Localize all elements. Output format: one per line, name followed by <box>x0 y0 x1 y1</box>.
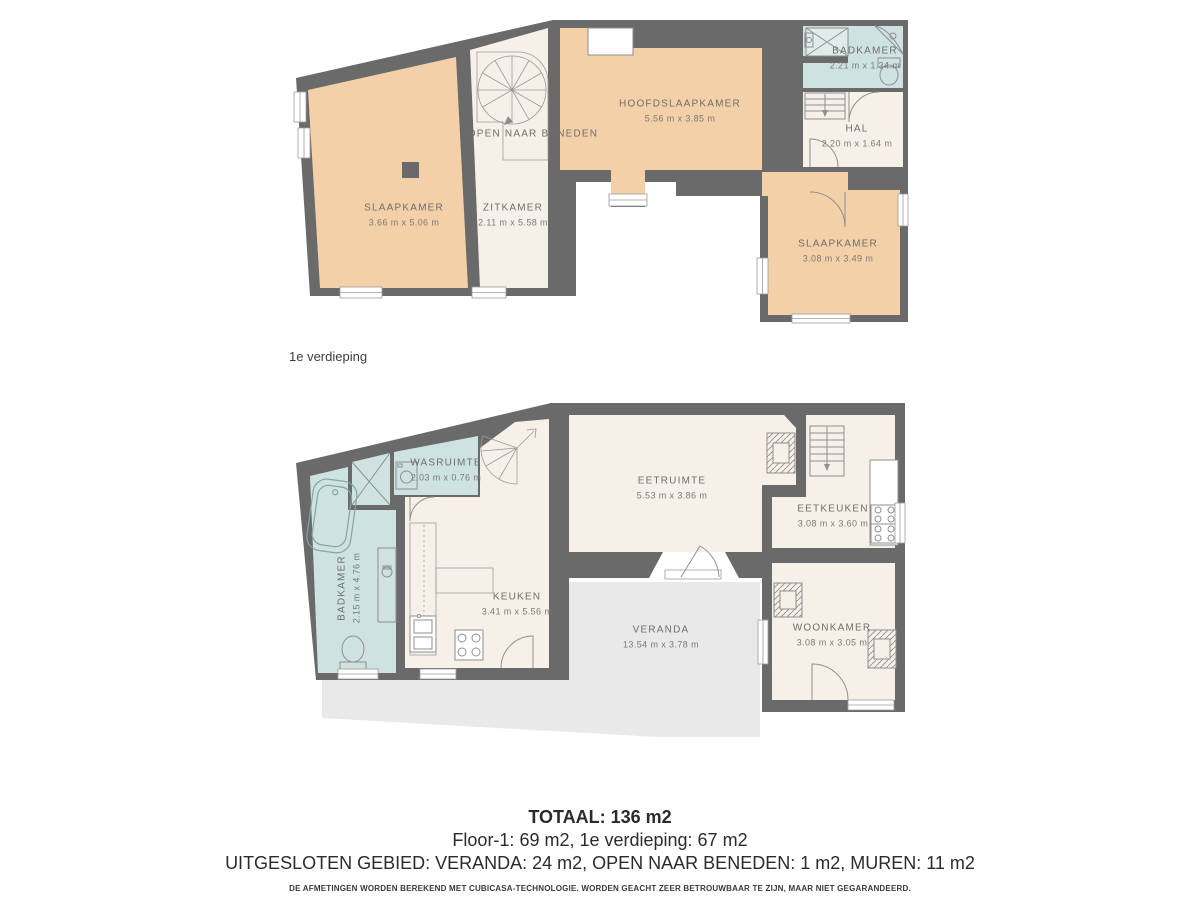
veranda-door-sill <box>665 570 721 579</box>
room-slaapkamer-right <box>768 190 900 315</box>
total-area: TOTAAL: 136 m2 <box>0 806 1200 829</box>
sink-icon-keuken <box>410 615 436 653</box>
room-zitkamer <box>470 28 548 288</box>
wall-pillar <box>402 162 419 178</box>
disclaimer: DE AFMETINGEN WORDEN BEREKEND MET CUBICA… <box>0 884 1200 893</box>
veranda-wall-chunk-right <box>725 552 762 578</box>
fireplace-icon-eetruimte <box>767 433 795 473</box>
summary-footer: TOTAAL: 136 m2 Floor-1: 69 m2, 1e verdie… <box>0 806 1200 893</box>
room-hal <box>803 92 903 167</box>
shower-icon <box>806 28 848 56</box>
ground-floor-plan <box>296 403 905 737</box>
room-slaapkamer-left <box>308 57 468 288</box>
veranda-wall-chunk-left <box>569 552 663 578</box>
badkamer-wall-stub <box>803 56 848 63</box>
fireplace-icon-woonkamer-right <box>868 630 896 668</box>
hoofdslaapkamer-recess <box>588 28 633 55</box>
floorplan-graphics <box>0 0 1200 900</box>
hoofdslaapkamer-top-wall <box>633 20 762 48</box>
room-eetruimte <box>569 415 796 552</box>
floorplan-page: SLAAPKAMER 3.66 m x 5.06 m ZITKAMER 2.11… <box>0 0 1200 900</box>
excluded-areas: UITGESLOTEN GEBIED: VERANDA: 24 m2, OPEN… <box>0 852 1200 875</box>
upper-floor-plan <box>294 20 908 323</box>
floor-areas: Floor-1: 69 m2, 1e verdieping: 67 m2 <box>0 829 1200 852</box>
fireplace-icon-woonkamer-left <box>774 583 802 617</box>
kitchen-counter-eetkeuken <box>870 460 898 545</box>
stove-icon-keuken <box>455 630 483 660</box>
floor-caption: 1e verdieping <box>289 349 367 364</box>
